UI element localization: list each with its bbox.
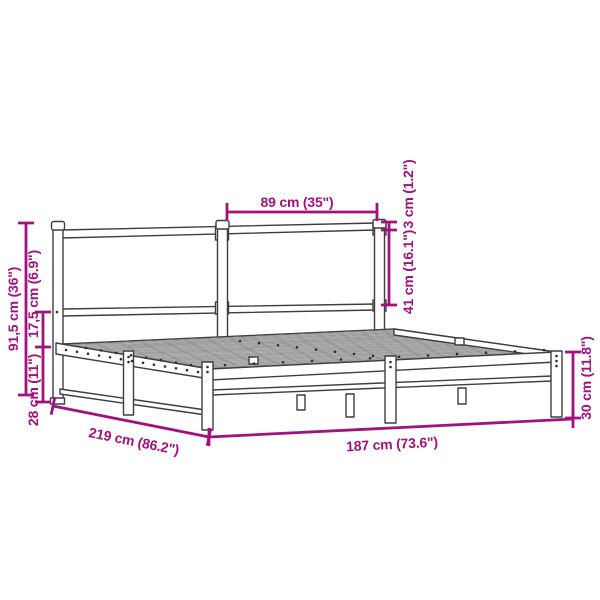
screw-hole-dot [142, 362, 145, 365]
headboard-post-center-cap [216, 221, 229, 230]
screw-hole-dot [456, 353, 459, 356]
screw-hole-dot [398, 356, 401, 359]
dimension-top-rail-and-gap: 3 cm (1.2") 41 cm (16.1") [381, 159, 416, 314]
screw-hole-dot [353, 353, 356, 356]
headboard-post-left-cap [52, 222, 65, 231]
screw-hole-dot [206, 366, 209, 369]
product-dimension-diagram: 89 cm (35") 3 cm (1.2") 41 cm (16.1") 91… [0, 0, 600, 600]
screw-hole-dot [555, 360, 558, 363]
screw-hole-dot [76, 351, 79, 354]
screw-hole-dot [277, 344, 280, 347]
dimension-label: 187 cm (73.6") [346, 434, 438, 455]
screw-hole-dot [485, 351, 488, 354]
screw-hole-dot [340, 358, 343, 361]
screw-hole-dot [543, 349, 546, 352]
screw-hole-dot [253, 362, 256, 365]
screw-hole-dot [282, 361, 285, 364]
dimension-headboard-section-width: 89 cm (35") [227, 194, 377, 221]
screw-hole-dot [197, 371, 200, 374]
dimension-label: 3 cm (1.2") [400, 159, 416, 228]
front-stretcher-bar [212, 376, 552, 395]
dimension-label: 91,5 cm (36") [5, 267, 21, 351]
screw-hole-dot [87, 352, 90, 355]
screw-hole-dot [56, 311, 59, 314]
screw-hole-dot [372, 355, 375, 358]
bed-frame-dimension-drawing: 89 cm (35") 3 cm (1.2") 41 cm (16.1") 91… [0, 0, 600, 600]
screw-hole-dot [98, 354, 101, 357]
screw-hole-dot [224, 364, 227, 367]
screw-hole-dot [389, 361, 392, 364]
screw-hole-dot [334, 350, 337, 353]
screw-hole-dot [100, 349, 103, 352]
bed-platform [56, 311, 562, 430]
screw-hole-dot [315, 348, 318, 351]
dimension-label: 30 cm (11.8") [578, 336, 594, 419]
headboard-post-left [53, 229, 63, 403]
screw-hole-dot [239, 340, 242, 343]
screw-hole-dot [555, 365, 558, 368]
screw-hole-dot [369, 357, 372, 360]
screw-hole-dot [127, 361, 130, 364]
screw-hole-dot [65, 349, 68, 352]
slat-clip [455, 338, 464, 345]
screw-hole-dot [427, 354, 430, 357]
screw-hole-dot [186, 369, 189, 372]
screw-hole-dot [311, 360, 314, 363]
dimension-label: 89 cm (35") [261, 194, 334, 210]
screw-hole-dot [115, 352, 118, 355]
screw-hole-dot [109, 356, 112, 359]
leg-under-stretcher [458, 388, 466, 404]
dimension-label: 41 cm (16.1") [400, 230, 416, 314]
leg-under-stretcher [297, 395, 305, 410]
dimension-frame-side-height: 30 cm (11.8") [565, 336, 594, 419]
screw-hole-dot [153, 363, 156, 366]
screw-hole-dot [175, 361, 178, 364]
screw-hole-dot [85, 347, 88, 350]
dimension-label: 28 cm (11") [25, 354, 41, 426]
headboard-post-center [218, 228, 228, 341]
screw-hole-dot [145, 356, 148, 359]
screw-hole-dot [206, 371, 209, 374]
screw-hole-dot [127, 356, 130, 359]
screw-hole-dot [514, 350, 517, 353]
dimension-label: 17,5 cm (6.9") [25, 250, 41, 338]
screw-hole-dot [190, 364, 193, 367]
screw-hole-dot [160, 359, 163, 362]
screw-hole-dot [120, 358, 123, 361]
screw-hole-dot [164, 365, 167, 368]
screw-hole-dot [555, 355, 558, 358]
screw-hole-dot [296, 346, 299, 349]
screw-hole-dot [175, 367, 178, 370]
screw-hole-dot [130, 354, 133, 357]
leg-under-stretcher [346, 394, 354, 417]
screw-hole-dot [131, 360, 134, 363]
screw-hole-dot [389, 366, 392, 369]
headboard-post-right [375, 227, 385, 335]
dimension-gap-and-clearance: 17,5 cm (6.9") 28 cm (11") [25, 250, 51, 426]
screw-hole-dot [258, 342, 261, 345]
